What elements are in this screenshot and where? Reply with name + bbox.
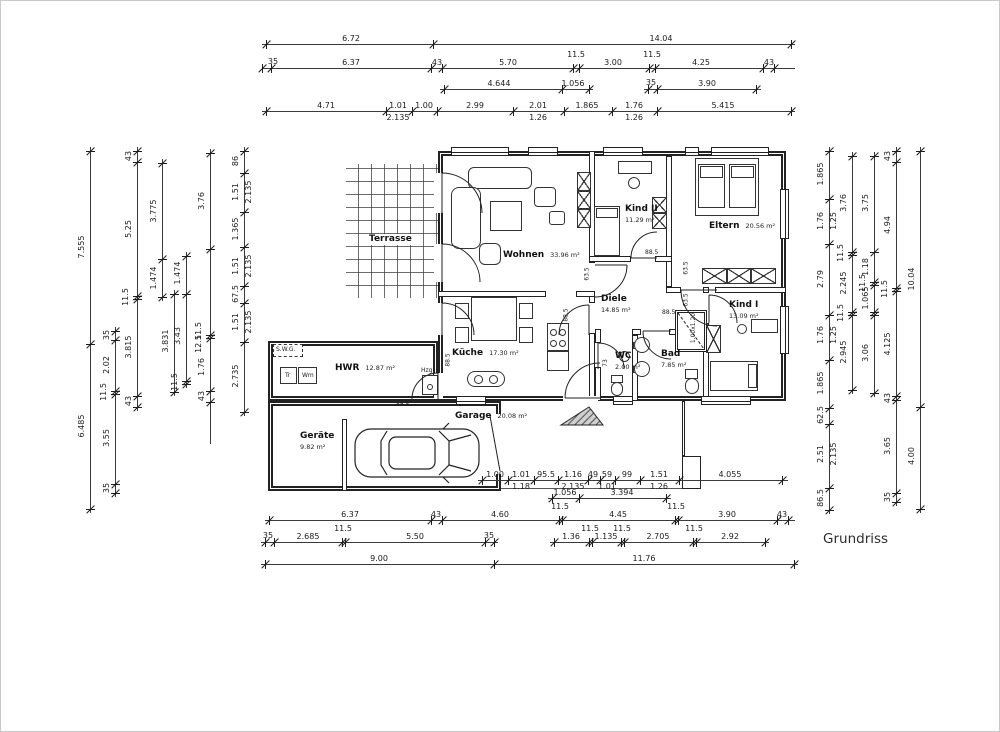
door-arc — [442, 244, 480, 282]
entrance-arrow — [561, 407, 603, 425]
door-arc — [595, 265, 627, 297]
door-arc — [565, 363, 600, 398]
drawing-title: Grundriss — [823, 531, 888, 547]
door-arc — [412, 373, 438, 399]
shower-diagonal — [678, 313, 704, 349]
door-arc — [709, 295, 737, 323]
door-arc — [598, 343, 624, 369]
door-arc — [559, 305, 589, 335]
door-arc — [442, 303, 474, 335]
door-arc — [442, 173, 482, 213]
door-arc — [631, 232, 657, 258]
scanned-drawing-frame: S.W.G.TrWmHzg1.00x1.20TerrasseWohnen33.9… — [0, 0, 1000, 732]
doors-and-symbols-overlay — [1, 1, 1000, 732]
garage-gate-line — [490, 416, 500, 471]
door-arc — [643, 331, 671, 359]
car-icon — [355, 423, 479, 483]
